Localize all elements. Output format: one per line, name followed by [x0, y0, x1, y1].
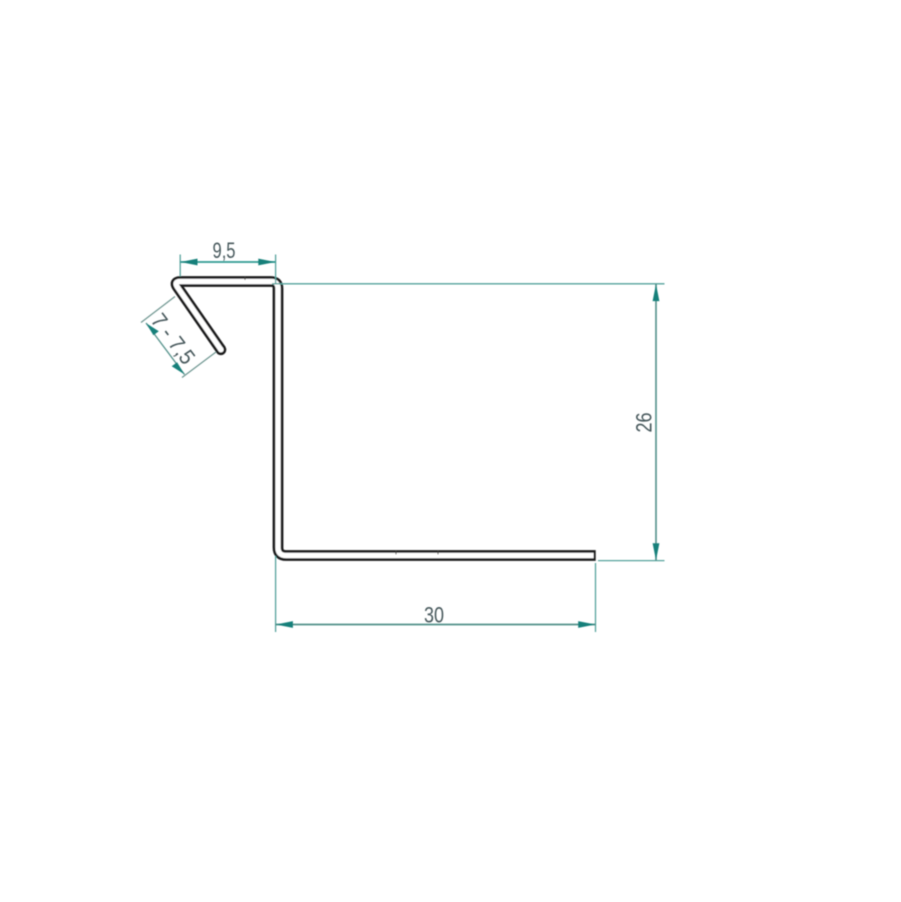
svg-text:30: 30 — [424, 602, 444, 627]
svg-text:9,5: 9,5 — [213, 238, 236, 263]
svg-text:26: 26 — [632, 413, 657, 433]
